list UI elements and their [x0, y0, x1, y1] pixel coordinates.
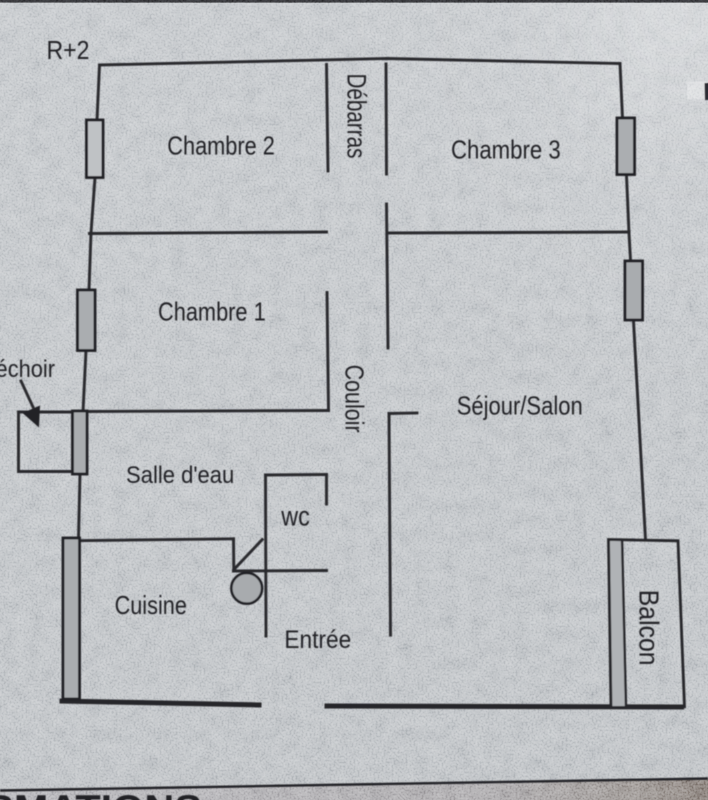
svg-text:Entrée: Entrée	[284, 626, 351, 654]
svg-text:Séchoir: Séchoir	[0, 356, 55, 383]
svg-text:R+2: R+2	[47, 35, 90, 65]
svg-text:Chambre 1: Chambre 1	[158, 297, 266, 327]
svg-text:Salle d'eau: Salle d'eau	[126, 462, 234, 489]
svg-text:RMATIONS: RMATIONS	[0, 789, 202, 800]
svg-text:wc: wc	[280, 501, 309, 532]
svg-text:Chambre 3: Chambre 3	[451, 135, 561, 165]
svg-text:Cuisine: Cuisine	[115, 590, 187, 620]
svg-text:Séjour/Salon: Séjour/Salon	[457, 391, 583, 421]
svg-text:Balcon: Balcon	[634, 590, 665, 666]
svg-text:Chambre 2: Chambre 2	[167, 131, 274, 161]
svg-text:Débarras: Débarras	[342, 74, 372, 159]
svg-text:Couloir: Couloir	[340, 365, 370, 433]
